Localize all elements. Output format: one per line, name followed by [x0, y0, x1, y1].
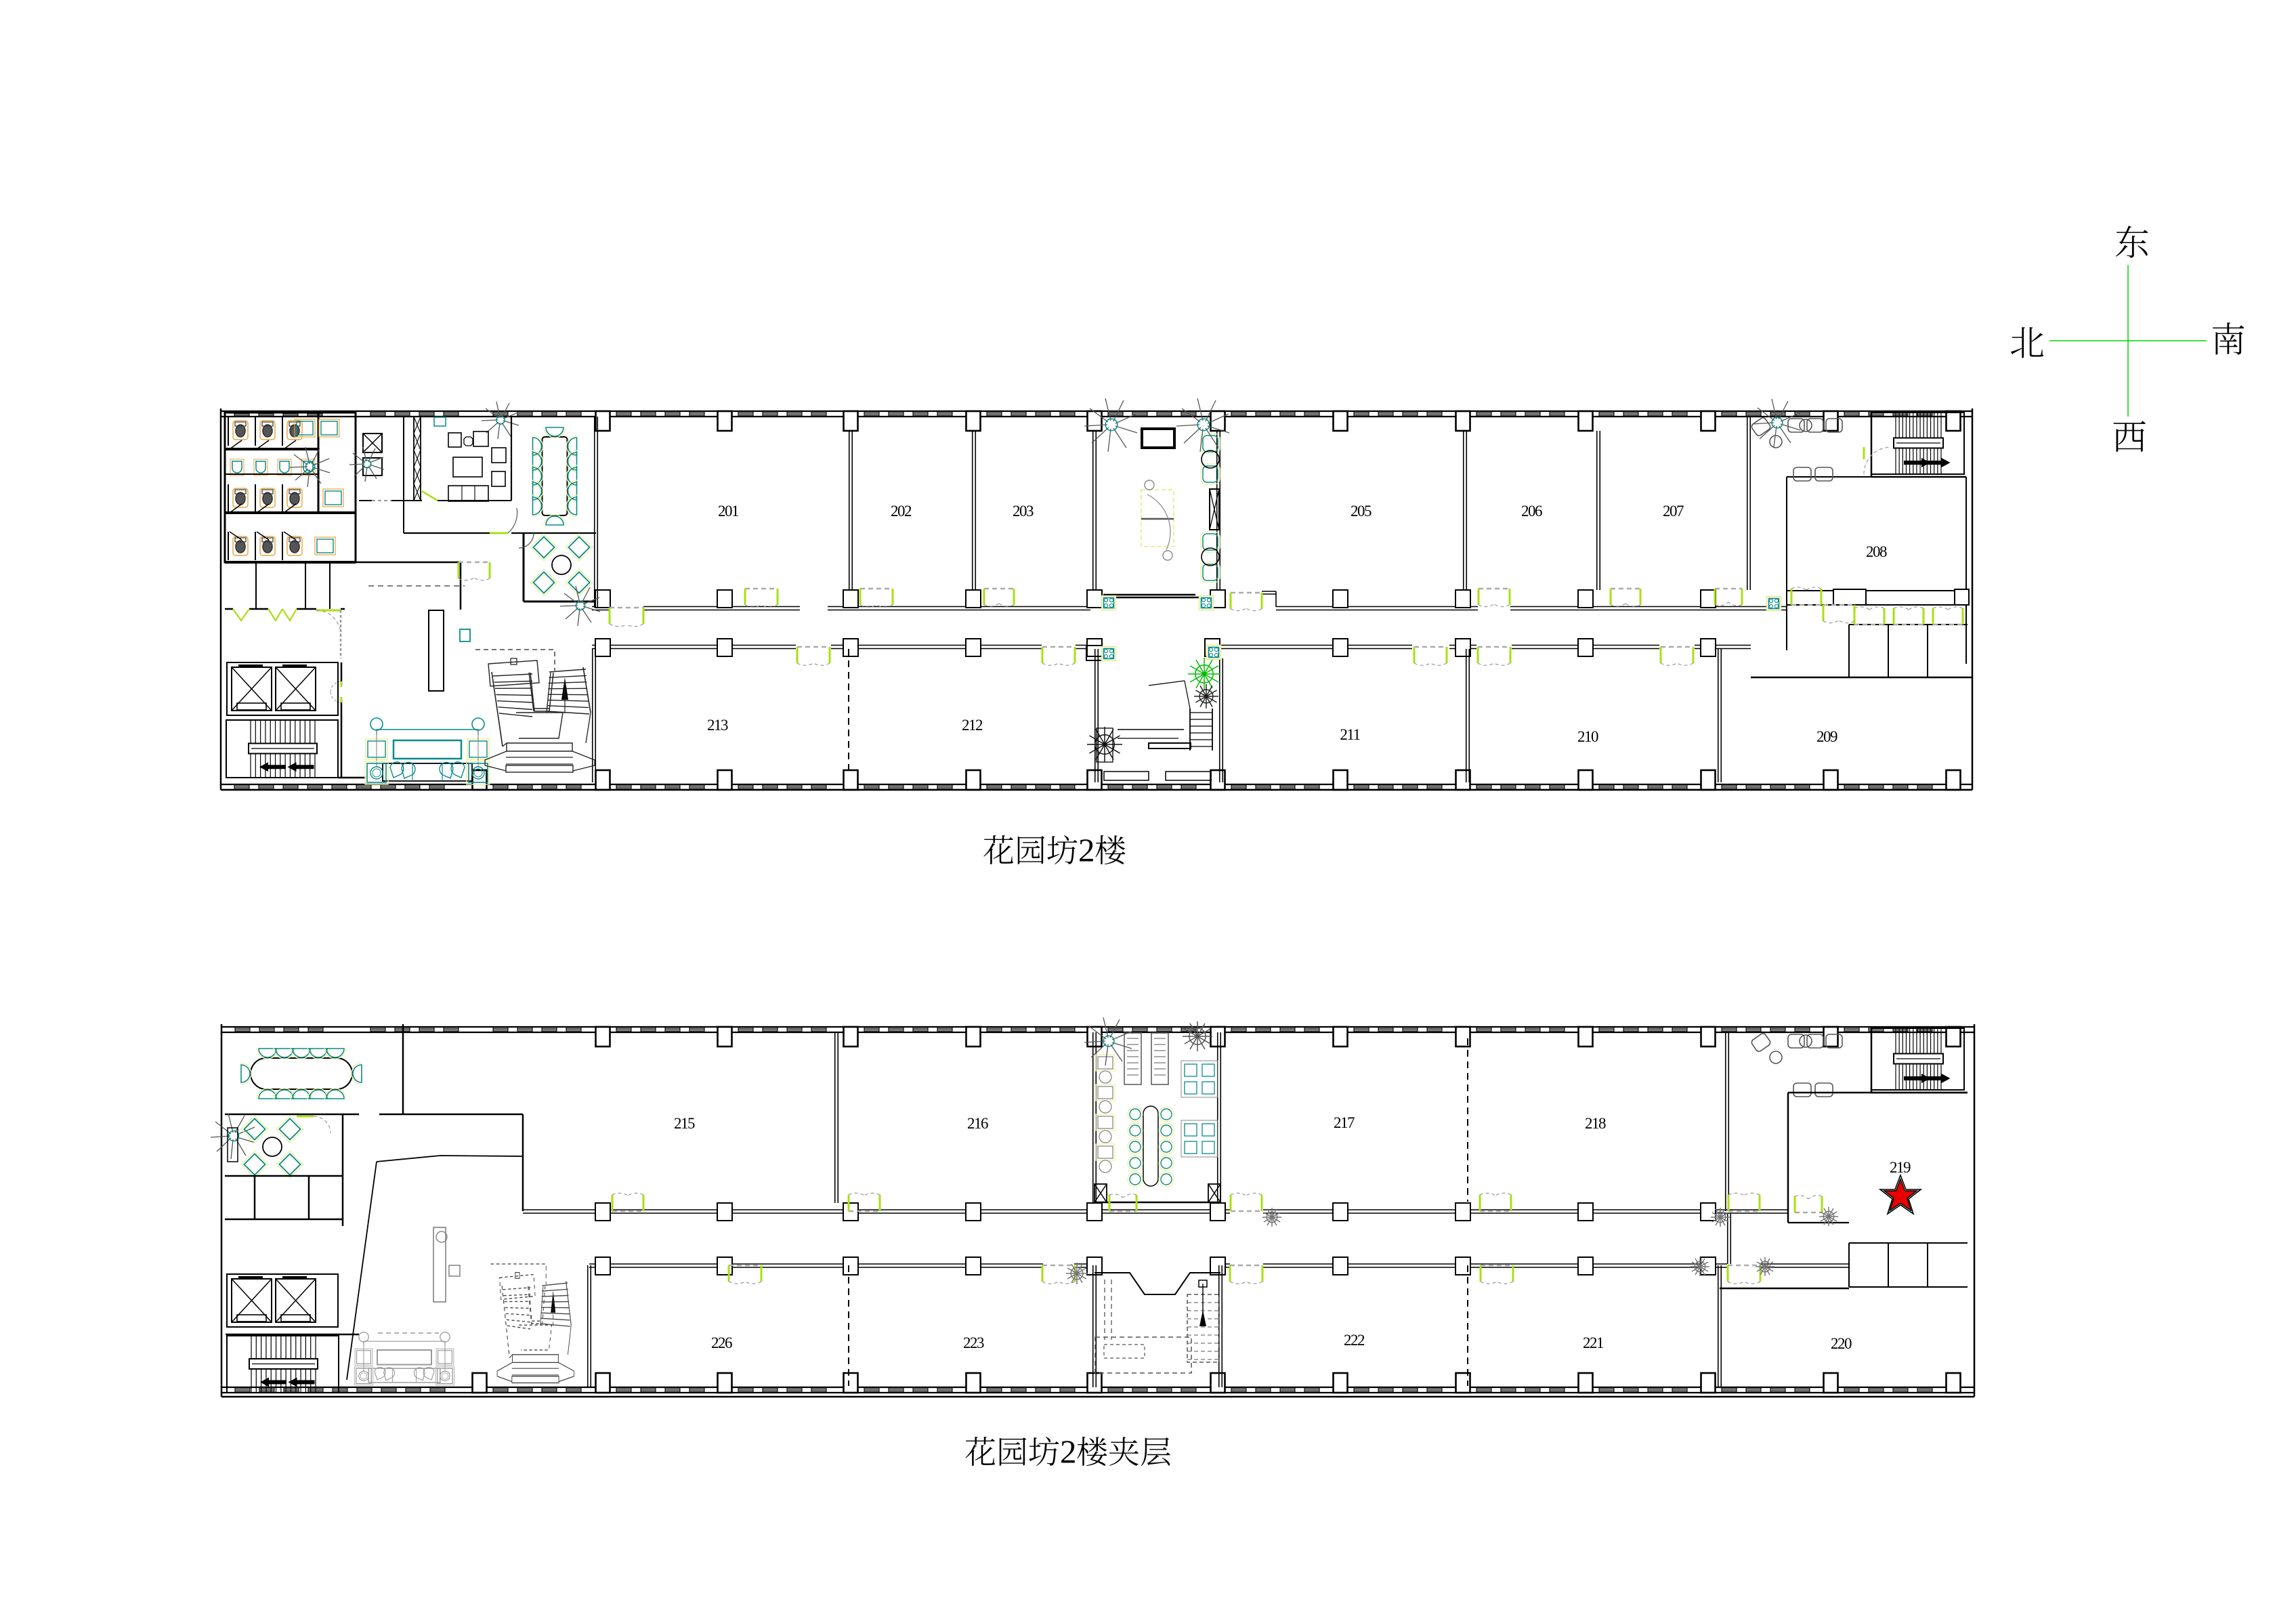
svg-text:209: 209: [1816, 728, 1837, 745]
svg-text:217: 217: [1334, 1114, 1355, 1131]
svg-text:212: 212: [962, 717, 983, 734]
svg-text:201: 201: [718, 503, 739, 520]
svg-text:203: 203: [1013, 503, 1034, 520]
svg-text:221: 221: [1583, 1334, 1604, 1351]
svg-text:223: 223: [963, 1334, 984, 1351]
svg-text:202: 202: [891, 503, 912, 520]
svg-text:222: 222: [1344, 1332, 1365, 1349]
svg-text:207: 207: [1663, 503, 1684, 520]
svg-text:205: 205: [1351, 503, 1372, 520]
svg-text:211: 211: [1340, 726, 1360, 743]
svg-text:216: 216: [967, 1115, 988, 1132]
svg-text:2: 2: [1078, 831, 1095, 868]
svg-text:2: 2: [1060, 1433, 1077, 1470]
svg-text:206: 206: [1521, 503, 1542, 520]
svg-text:219: 219: [1890, 1159, 1911, 1176]
svg-text:226: 226: [711, 1334, 732, 1351]
svg-text:218: 218: [1585, 1115, 1606, 1132]
svg-text:208: 208: [1866, 543, 1887, 560]
svg-text:215: 215: [674, 1115, 695, 1132]
svg-text:220: 220: [1831, 1335, 1852, 1352]
svg-text:210: 210: [1577, 728, 1598, 745]
svg-text:213: 213: [707, 717, 728, 734]
